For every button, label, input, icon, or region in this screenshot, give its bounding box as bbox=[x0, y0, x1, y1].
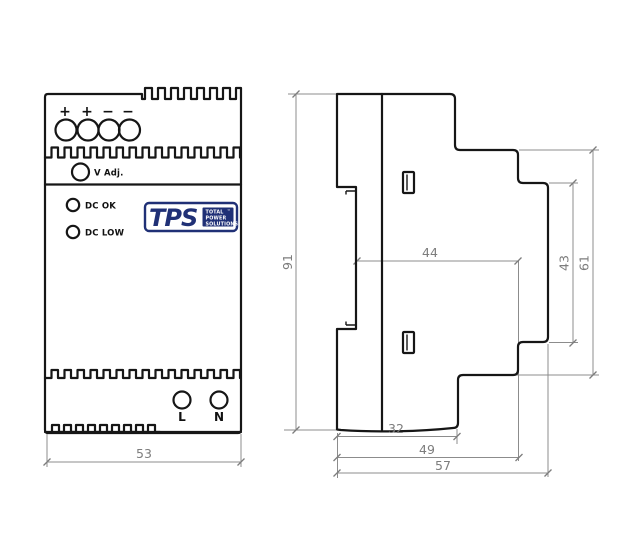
dc-ok-led bbox=[67, 199, 79, 211]
vent-band-lower bbox=[45, 370, 240, 378]
dim-49-label: 49 bbox=[419, 442, 435, 457]
slot-upper bbox=[403, 172, 414, 193]
terminal-n-screw bbox=[211, 392, 228, 409]
dimension-ticks bbox=[44, 91, 597, 477]
terminal-polarity-label: + bbox=[81, 104, 93, 120]
terminal-n-label: N bbox=[214, 410, 224, 424]
logo-word-power: POWER bbox=[206, 216, 227, 222]
drawing-canvas: + + − − V Adj. DC OK DC LOW TPS bbox=[0, 0, 626, 549]
terminal-polarity-label: + bbox=[59, 104, 71, 120]
output-terminals: L N bbox=[174, 392, 228, 425]
dim-53-label: 53 bbox=[136, 446, 152, 461]
status-leds: DC OK DC LOW bbox=[67, 199, 125, 239]
screw-terminal bbox=[119, 120, 140, 141]
screw-terminal bbox=[99, 120, 120, 141]
front-view: + + − − V Adj. DC OK DC LOW TPS bbox=[45, 88, 241, 433]
dc-ok-label: DC OK bbox=[85, 202, 116, 212]
din-clip-seam-top bbox=[346, 191, 356, 195]
dim-32-label: 32 bbox=[388, 421, 404, 436]
screw-terminal bbox=[78, 120, 99, 141]
dim-57-label: 57 bbox=[435, 458, 451, 473]
logo-word-total: TOTAL bbox=[206, 210, 224, 216]
dim-43-label: 43 bbox=[557, 255, 572, 271]
input-terminals: + + − − bbox=[56, 104, 141, 141]
dim-44-label: 44 bbox=[422, 245, 438, 260]
dc-low-label: DC LOW bbox=[85, 229, 125, 239]
terminal-l-screw bbox=[174, 392, 191, 409]
tps-logo: TPS TOTAL ™ POWER SOLUTIONS bbox=[145, 203, 239, 232]
logo-acronym: TPS bbox=[149, 204, 197, 232]
din-clip-seam-bottom bbox=[346, 322, 356, 326]
v-adj-pot bbox=[72, 164, 89, 181]
dc-low-led bbox=[67, 226, 79, 238]
logo-word-solutions: SOLUTIONS bbox=[206, 222, 239, 228]
terminal-polarity-label: − bbox=[102, 104, 114, 120]
dim-61-label: 61 bbox=[577, 255, 592, 271]
slot-lower bbox=[403, 332, 414, 353]
terminal-polarity-label: − bbox=[122, 104, 134, 120]
side-slots bbox=[403, 172, 414, 353]
technical-drawing: + + − − V Adj. DC OK DC LOW TPS bbox=[0, 0, 626, 549]
vent-band-upper bbox=[45, 148, 240, 158]
dim-91-label: 91 bbox=[280, 254, 295, 270]
front-housing-outline bbox=[45, 88, 241, 433]
v-adj-control: V Adj. bbox=[72, 164, 124, 181]
v-adj-label: V Adj. bbox=[94, 169, 124, 179]
trademark-symbol: ™ bbox=[227, 209, 231, 214]
terminal-l-label: L bbox=[178, 410, 186, 424]
dimension-lines bbox=[44, 91, 600, 479]
dimension-labels: 53 91 44 43 61 32 49 57 bbox=[136, 245, 591, 473]
screw-terminal bbox=[56, 120, 77, 141]
